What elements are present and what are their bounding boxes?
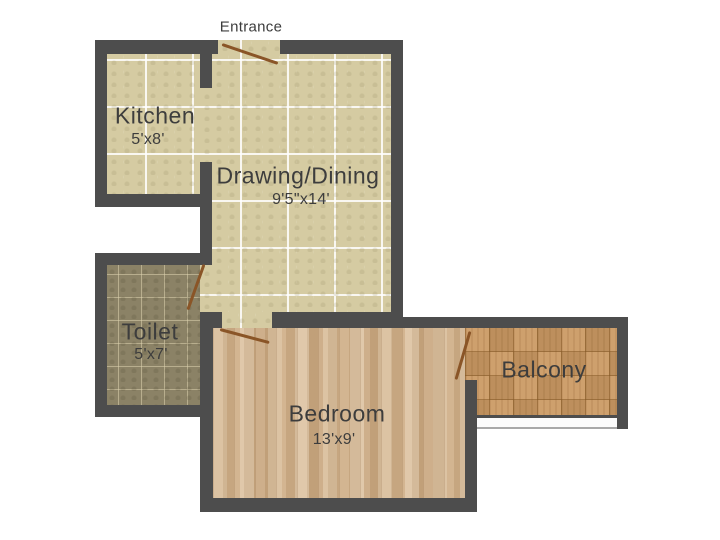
wall-bedroom-bottom [200,498,477,512]
wall-toilet-left [95,253,107,417]
kitchen-doorway [200,88,212,162]
kitchen-dimensions: 5'x8' [131,132,164,148]
bedroom-dimensions: 13'x9' [313,432,356,448]
bedroom-doorway [222,312,272,328]
balcony-railing [477,415,617,429]
wall-toilet-top [95,253,200,265]
drawing-dining-label: Drawing/Dining [217,165,380,188]
wall-balcony-right [617,317,628,429]
kitchen-label: Kitchen [115,105,195,128]
wall-top-right [280,40,403,54]
bedroom-label: Bedroom [289,403,386,426]
wall-bedroom-top-stub [200,312,222,328]
wall-kitchen-bottom [95,194,212,207]
entrance-label: Entrance [220,20,282,35]
balcony-label: Balcony [501,359,586,382]
wall-left-kitchen [95,40,107,207]
wall-drawing-right [391,40,403,328]
toilet-dimensions: 5'x7' [134,347,167,363]
wall-kitchen-divider-lower [200,162,212,265]
floor-plan: Entrance Kitchen 5'x8' Drawing/Dining 9'… [0,0,720,540]
wall-bedroom-top [272,312,403,328]
wall-balcony-top [403,317,628,328]
drawing-dining-dimensions: 9'5"x14' [272,192,330,208]
toilet-label: Toilet [122,321,179,344]
wall-toilet-bottom [95,405,212,417]
wall-bedroom-left [200,315,213,512]
wall-kitchen-divider-upper [200,40,212,88]
wall-bedroom-right [465,380,477,512]
